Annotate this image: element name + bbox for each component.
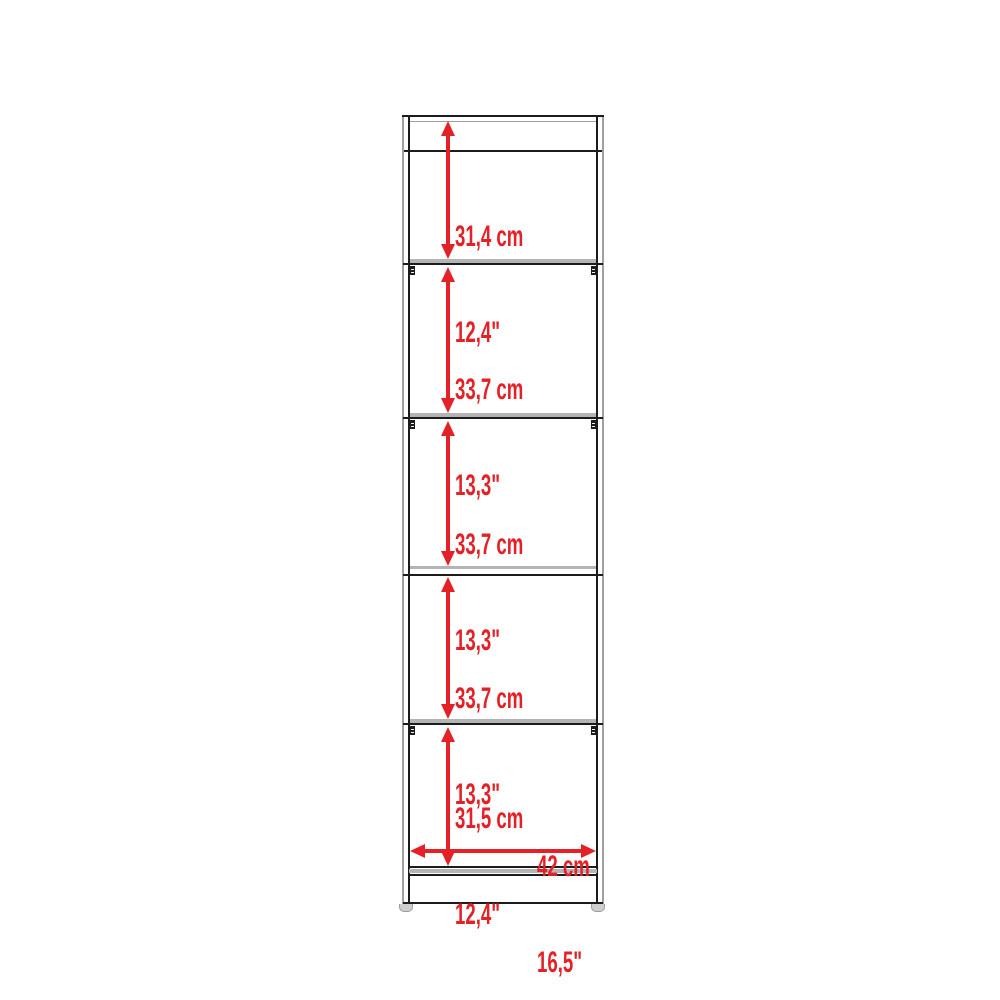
- top-back-panel-line: [410, 121, 596, 122]
- bookcase-dimension-diagram: 31,4 cm 12,4" 33,7 cm 13,3" 33,7 cm 13,3…: [0, 0, 1000, 1000]
- dimension-arrow-section-4: [440, 577, 456, 719]
- dimension-value-inch: 12,4": [455, 899, 523, 931]
- arrow-down-icon: [441, 398, 455, 413]
- top-panel-edge: [402, 115, 604, 117]
- dimension-label-width: 42 cm 16,5": [537, 787, 590, 1000]
- left-side-panel-outer-edge: [402, 115, 404, 906]
- top-divider-panel: [404, 150, 602, 152]
- dimension-arrow-section-3: [440, 421, 456, 566]
- left-side-panel-inner-edge: [408, 115, 410, 904]
- arrow-shaft: [446, 279, 450, 401]
- dimension-arrow-section-2: [440, 267, 456, 413]
- shelf-2-pin-right: [591, 420, 596, 429]
- dimension-value-cm: 33,7 cm: [455, 683, 523, 715]
- foot-left: [399, 904, 413, 912]
- foot-right: [591, 904, 605, 912]
- shelf-4-pin-right: [591, 726, 596, 735]
- right-side-panel-inner-edge: [596, 115, 598, 904]
- arrow-shaft: [446, 739, 450, 854]
- dimension-value-cm: 31,4 cm: [455, 221, 523, 253]
- right-side-panel-outer-edge: [602, 115, 604, 906]
- arrow-down-icon: [441, 551, 455, 566]
- dimension-value-cm: 33,7 cm: [455, 529, 523, 561]
- dimension-value-cm: 31,5 cm: [455, 803, 523, 835]
- dimension-value-inch: 16,5": [537, 947, 590, 979]
- arrow-shaft: [446, 433, 450, 554]
- shelf-1-pin-left: [410, 266, 415, 275]
- shelf-2-pin-left: [410, 420, 415, 429]
- dimension-value-cm: 42 cm: [537, 851, 590, 883]
- dimension-value-cm: 33,7 cm: [455, 374, 523, 406]
- dimension-label-section-5: 31,5 cm 12,4": [455, 739, 523, 995]
- arrow-shaft: [446, 133, 450, 247]
- shelf-1-pin-right: [591, 266, 596, 275]
- dimension-arrow-section-1: [440, 121, 456, 259]
- arrow-shaft: [446, 589, 450, 707]
- shelf-4-pin-left: [410, 726, 415, 735]
- arrow-down-icon: [441, 704, 455, 719]
- arrow-down-icon: [441, 244, 455, 259]
